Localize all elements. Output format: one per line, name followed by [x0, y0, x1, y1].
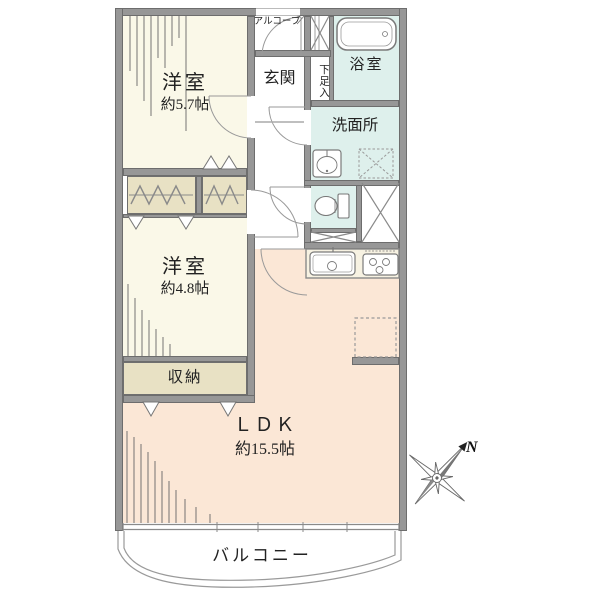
- door-opening-washroom: [304, 110, 311, 145]
- wall-toilet-bottom: [311, 228, 356, 233]
- wall-left: [115, 8, 123, 531]
- bedroom2-label: 洋室: [123, 256, 247, 278]
- door-opening-bedroom2: [247, 190, 255, 234]
- wall-right: [399, 8, 407, 531]
- wall-storage-top: [123, 356, 247, 362]
- wall-washroom-bottom: [304, 180, 399, 186]
- pipe-space-top: [311, 16, 329, 50]
- pipe-space-tall: [362, 183, 399, 242]
- wall-storage-bottom: [123, 395, 255, 403]
- ldk-size: 約15.5帖: [150, 441, 380, 459]
- compass-north-label: N: [465, 439, 479, 456]
- pipe-space-small: [311, 232, 356, 242]
- wall-kitchen-top: [304, 242, 399, 249]
- bedroom2-size: 約4.8帖: [123, 281, 247, 298]
- door-opening-front: [256, 8, 300, 16]
- closet-right: [202, 176, 247, 214]
- alcove-label: アルコーブ: [250, 17, 304, 27]
- storage-label: 収納: [123, 369, 247, 386]
- bathroom-label: 浴室: [334, 57, 399, 74]
- toilet-floor: [311, 186, 356, 228]
- bedroom1-label: 洋室: [123, 72, 247, 94]
- wall-alcove-bottom: [255, 50, 331, 57]
- shoe-cabinet-label: 下足入: [312, 59, 329, 103]
- bedroom1-name: 洋室: [162, 72, 208, 94]
- ldk-floor-right: [255, 249, 399, 523]
- entrance-label: 玄関: [255, 70, 304, 88]
- door-opening-toilet: [304, 188, 311, 222]
- floor-plan: N 洋室 約5.7帖 洋室 約4.8帖 ＬＤＫ 約15.5帖 収納 玄関 下足入…: [0, 0, 600, 600]
- wall-toilet-right: [356, 183, 362, 242]
- wall-closet-divider: [196, 176, 202, 214]
- washroom-label: 洗面所: [311, 117, 399, 134]
- wall-ldk-stub: [352, 357, 399, 365]
- bedroom2-name: 洋室: [162, 256, 208, 278]
- bedroom1-size: 約5.7帖: [123, 97, 247, 114]
- balcony-label: バルコニー: [123, 547, 401, 566]
- wall-closet-bottom: [123, 214, 247, 218]
- window-wall: [123, 522, 399, 532]
- ldk-label: ＬＤＫ: [150, 416, 380, 437]
- wall-closet-top: [123, 168, 247, 176]
- closet-left: [127, 176, 196, 214]
- door-opening-bedroom1: [247, 96, 255, 138]
